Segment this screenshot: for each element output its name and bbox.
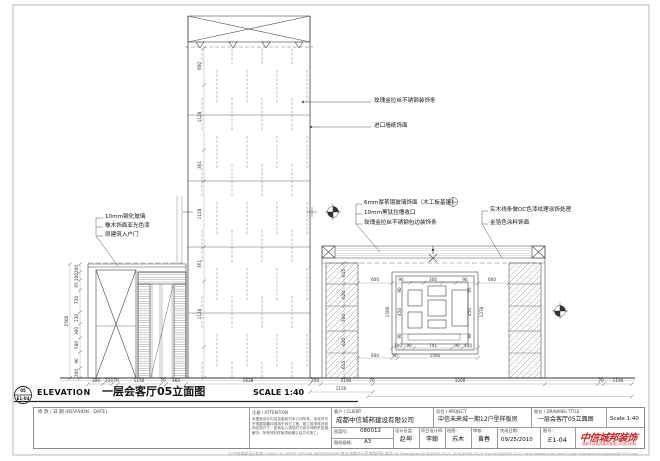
size-label: 图纸规格: <box>334 441 352 445</box>
dim-label: 1190 <box>341 379 352 383</box>
role-label: 审核: <box>473 429 483 433</box>
dim-label: 70 <box>113 379 118 383</box>
dim-label: 65 <box>75 282 79 287</box>
dim-label: 700 <box>342 314 346 322</box>
role-value: 李翰 <box>426 437 438 443</box>
annotation-label: 10mm黑钛拉槽收口 <box>364 211 416 217</box>
cad-linework <box>0 0 660 461</box>
dim-label: 90 <box>392 354 397 358</box>
dim-label: 90 <box>398 333 402 338</box>
annotation-label: 10mm钢化玻璃 <box>105 215 145 221</box>
dim-label: 400 <box>464 344 472 348</box>
size-value: A3 <box>364 440 371 446</box>
date-value: 09/25/2010 <box>501 438 533 444</box>
date-label: 完成日期: <box>500 429 518 433</box>
dim-label: 70 <box>369 379 374 383</box>
dim-label: 580 <box>75 341 79 349</box>
project-value: 中信未来城一期12户型样板房 <box>438 417 518 423</box>
client-label: 客户 / CLIENT <box>334 410 361 414</box>
dim-total-label: 1500 <box>386 307 390 318</box>
dim-label: 600 <box>198 62 202 70</box>
dim-label: 300 <box>429 278 437 282</box>
annotation-label: 进口墙纸饰面 <box>374 124 408 130</box>
annotation-label: 金箔色涂料饰面 <box>490 221 529 227</box>
elevation-label: ELEVATION <box>37 389 91 397</box>
dim-label: 620 <box>342 291 346 299</box>
dim-total-label: 2500 <box>65 316 69 327</box>
dim-label: 450 <box>398 308 402 316</box>
dim-label: 361 <box>198 161 202 169</box>
dim-label: 615 <box>342 269 346 277</box>
role-label: 绘图: <box>447 429 457 433</box>
dim-label: 90 <box>406 344 411 348</box>
dim-label: 100 <box>394 344 402 348</box>
drawing-title-value: 一层会客厅05立面图 <box>538 417 594 423</box>
dim-label: 70 <box>160 379 165 383</box>
dim-label: 100 <box>75 273 79 281</box>
elevation-symbol-sheet: E1-04 <box>17 397 30 401</box>
dim-label: 250 <box>311 379 319 383</box>
dim-label: 620 <box>342 338 346 346</box>
annotation-label: 玫瑰金拉丝不锈钢装饰条 <box>374 99 436 105</box>
scale-label: SCALE 1:40 <box>253 389 304 397</box>
attention-label: 注意 / ATTENTION <box>252 411 288 415</box>
dim-label: 1592 <box>430 354 441 358</box>
dim-label: 1150 <box>134 379 145 383</box>
dim-label: 615 <box>342 361 346 369</box>
annotation-label: 实木线条做OC色漆纹理涂饰处理 <box>490 208 571 214</box>
role-value: 黄春 <box>478 437 490 443</box>
dim-label: 360 <box>172 379 180 383</box>
dim-label: 90 <box>75 358 79 363</box>
dim-label: 210 <box>105 379 113 383</box>
scale-value: Scale 1:40 <box>610 417 639 423</box>
client-value: 成都中信城邦建设有限公司 <box>336 417 414 424</box>
dim-label: 450 <box>468 308 472 316</box>
file-no-label: 档案号: <box>334 430 348 434</box>
dwg-no-label: 图号: <box>543 429 553 433</box>
role-value: 苏木 <box>452 437 464 443</box>
title-block: 修 改 / 日 期 (REVISION · DATE) 注意 / ATTENTI… <box>33 407 645 449</box>
dim-label: 90 <box>454 344 459 348</box>
dim-label: 90 <box>398 278 403 282</box>
dim-label: 90 <box>462 278 467 282</box>
project-label: 项目 / PROJECT <box>436 410 467 414</box>
dim-label: 3200 <box>455 379 466 383</box>
annotation-label: 橡木饰面亚光色漆 <box>105 224 150 230</box>
revision-label: 修 改 / 日 期 (REVISION · DATE) <box>38 411 107 416</box>
dim-label: 730 <box>75 296 79 304</box>
dim-label: 361 <box>198 260 202 268</box>
dim-total-label: 1150 <box>336 387 347 391</box>
dim-label: 200 <box>75 265 79 273</box>
dim-label: 600 <box>371 354 379 358</box>
dim-label: 200 <box>75 369 79 377</box>
dwg-no-value: E1-04 <box>548 437 567 444</box>
footer-company-info: 注:中信城邦设计机构 CHINA LN CREST DESIGN PARTNER… <box>228 451 637 457</box>
dim-label: 70 <box>598 379 603 383</box>
role-label: 设计总监: <box>395 429 413 433</box>
annotation-label: 原建筑入户门 <box>105 233 139 239</box>
dim-total-label: 1278 <box>480 307 484 318</box>
dim-label: 741 <box>429 344 437 348</box>
dim-label: 600 <box>371 278 379 282</box>
dim-label: 1128 <box>198 209 202 220</box>
dim-label: 90 <box>398 287 402 292</box>
drawing-sheet: 玫瑰金拉丝不锈钢装饰条 进口墙纸饰面 10mm钢化玻璃 橡木饰面亚光色漆 原建筑… <box>0 0 660 461</box>
drawing-title-label: 图名 / DRAWING TITLE <box>534 410 579 414</box>
dim-label: 1128 <box>198 112 202 123</box>
company-logo-subtext: 成都中信城邦建设有限公司设计机构 <box>582 441 636 446</box>
dim-label: 600 <box>488 278 496 282</box>
annotation-label: 玫瑰金拉丝不锈钢包边装饰条 <box>364 221 437 227</box>
dim-label: 95 <box>468 287 472 292</box>
dim-label: 1190 <box>613 379 624 383</box>
role-value: 赵坤 <box>400 437 412 443</box>
dim-label: 1638 <box>243 379 254 383</box>
dim-label: 130 <box>75 314 79 322</box>
dim-label: 300 <box>75 327 79 335</box>
role-label: 项目设计师: <box>421 429 443 433</box>
annotation-label: 6mm厚茶镜玻璃饰面（木工板基层） <box>364 201 457 207</box>
dim-label: 1128 <box>198 309 202 320</box>
file-no-value: 080012 <box>360 429 381 435</box>
dim-label: 90 <box>468 333 472 338</box>
elevation-symbol-number: 05 <box>20 389 26 393</box>
dim-label: 300 <box>92 379 100 383</box>
attention-text: 本图纸设计内容及版权归本公司所有，未经许可不得复制翻印或用于其它工程。施工前须核… <box>252 417 328 436</box>
page-title: 一层会客厅05立面图 <box>102 386 205 397</box>
